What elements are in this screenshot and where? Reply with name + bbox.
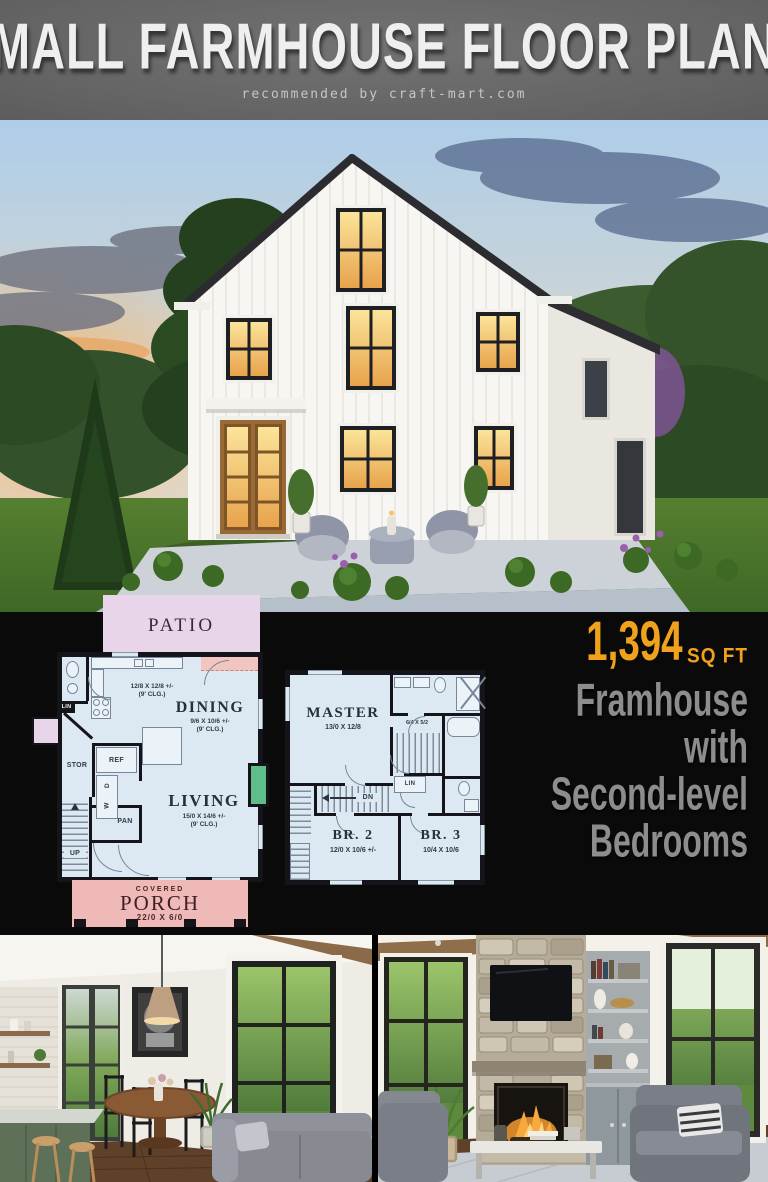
burner bbox=[102, 709, 109, 716]
farmhouse-photo-illustration bbox=[0, 120, 768, 612]
bay-box bbox=[32, 717, 60, 745]
sqft-unit: SQ FT bbox=[687, 645, 748, 669]
bedroom2-label: BR. 2 bbox=[318, 828, 388, 844]
porch-post bbox=[74, 919, 86, 927]
toilet-fixture bbox=[434, 677, 446, 693]
window bbox=[308, 670, 342, 675]
master-label: MASTER bbox=[298, 705, 388, 722]
shiplap-shelves bbox=[0, 987, 58, 1121]
porch-post bbox=[126, 919, 138, 927]
up-arrow-icon bbox=[71, 803, 79, 810]
bedroom2-dims: 12/0 X 10/6 +/- bbox=[310, 847, 396, 855]
headline-line-2: with bbox=[514, 721, 748, 774]
window bbox=[258, 699, 263, 729]
dryer-label: D bbox=[103, 783, 112, 788]
down-label: DN bbox=[356, 793, 380, 802]
sqft-line: 1,394SQ FT bbox=[448, 618, 748, 673]
lower-roof-hatch bbox=[290, 843, 310, 880]
stair-open-rail bbox=[290, 786, 311, 838]
sink-fixture bbox=[67, 683, 78, 694]
headline-line-1: Framhouse bbox=[514, 674, 748, 727]
up-label: UP bbox=[64, 849, 86, 858]
window bbox=[285, 687, 290, 721]
wall bbox=[63, 712, 93, 739]
callout-headline: Framhouse with Second-level Bedrooms bbox=[448, 677, 748, 865]
kitchen-dims: 12/8 X 12/8 +/-(9' CLG.) bbox=[110, 683, 194, 699]
armchair bbox=[630, 1085, 750, 1182]
bath-sink bbox=[394, 677, 411, 688]
master-dims: 13/0 X 12/8 bbox=[298, 724, 388, 732]
sofa bbox=[212, 1113, 372, 1182]
header-banner: SMALL FARMHOUSE FLOOR PLANS recommended … bbox=[0, 0, 768, 120]
door-arc bbox=[400, 793, 415, 808]
burner bbox=[93, 699, 100, 706]
burner bbox=[102, 699, 109, 706]
window bbox=[418, 880, 454, 885]
interior-photos-row bbox=[0, 935, 768, 1182]
floor-plans-section: PATIO LIN bbox=[0, 612, 768, 935]
stairs bbox=[62, 799, 88, 875]
burner bbox=[93, 709, 100, 716]
door-arc bbox=[118, 845, 149, 876]
porch-area: COVERED PORCH 22/0 X 6/0 bbox=[72, 880, 248, 927]
sqft-callout: 1,394SQ FT Framhouse with Second-level B… bbox=[448, 612, 748, 865]
linen-label: LIN bbox=[394, 780, 426, 789]
window bbox=[112, 652, 138, 657]
wall bbox=[92, 743, 142, 746]
armchair bbox=[378, 1091, 448, 1182]
porch-label: PORCH bbox=[120, 893, 200, 913]
bath-sink bbox=[413, 677, 430, 688]
porch-dims: 22/0 X 6/0 bbox=[137, 913, 183, 922]
fridge-label: REF bbox=[96, 756, 137, 765]
washer-label: W bbox=[103, 802, 112, 808]
wall bbox=[92, 743, 95, 797]
toilet-fixture bbox=[66, 661, 79, 678]
storage-label: STOR bbox=[62, 761, 92, 770]
living-room-photo bbox=[378, 935, 768, 1182]
window bbox=[330, 880, 362, 885]
wall bbox=[354, 813, 412, 816]
window bbox=[258, 825, 263, 849]
farmhouse-exterior-photo bbox=[0, 120, 768, 612]
patio-label: PATIO bbox=[148, 615, 215, 637]
stair-arrow-line bbox=[330, 797, 358, 799]
porch-post bbox=[184, 919, 196, 927]
page-title: SMALL FARMHOUSE FLOOR PLANS bbox=[0, 7, 768, 84]
first-floor-plan: LIN REF D W PAN STOR UP bbox=[57, 652, 263, 882]
dn-arrow-icon bbox=[322, 794, 329, 802]
sqft-value: 1,394 bbox=[587, 608, 683, 673]
french-door bbox=[216, 416, 290, 539]
patio-area: PATIO bbox=[103, 595, 260, 657]
kitchen-sink bbox=[134, 659, 143, 667]
wall bbox=[442, 776, 445, 813]
wall bbox=[398, 816, 401, 880]
page: SMALL FARMHOUSE FLOOR PLANS recommended … bbox=[0, 0, 768, 1182]
door-arc bbox=[345, 765, 366, 786]
dining-label: DINING bbox=[166, 699, 254, 717]
living-dims: 15/0 X 14/6 +/-(9' CLG.) bbox=[156, 813, 252, 829]
headline-line-4: Bedrooms bbox=[514, 815, 748, 868]
wall bbox=[314, 813, 336, 816]
tv bbox=[490, 965, 572, 1021]
page-subtitle: recommended by craft-mart.com bbox=[242, 87, 527, 102]
kitchen-sink bbox=[145, 659, 154, 667]
dining-room-photo bbox=[0, 935, 372, 1182]
wall bbox=[442, 713, 445, 779]
living-label: LIVING bbox=[156, 791, 252, 811]
headline-line-3: Second-level bbox=[514, 768, 748, 821]
wall bbox=[390, 713, 408, 716]
pantry-label: PAN bbox=[110, 817, 140, 826]
dining-dims: 9/6 X 10/6 +/-(9' CLG.) bbox=[166, 718, 254, 734]
linen-label: LIN bbox=[58, 702, 75, 713]
porch-post bbox=[234, 919, 246, 927]
wall bbox=[89, 797, 92, 877]
wall bbox=[390, 675, 393, 713]
